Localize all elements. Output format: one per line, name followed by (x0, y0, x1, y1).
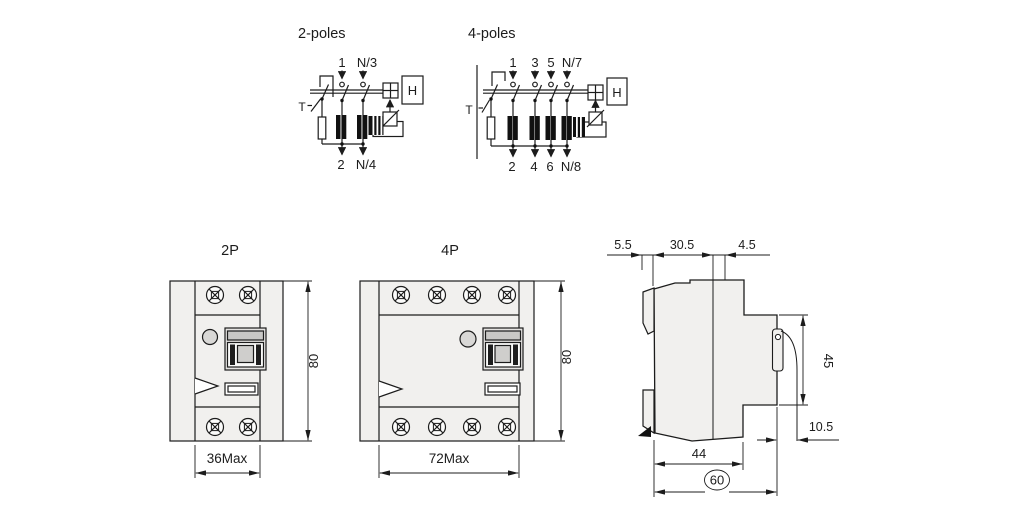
terminal-label-n3: N/3 (357, 55, 377, 70)
test-button-label: T (298, 100, 306, 114)
trip-linkage-bracket (492, 72, 505, 86)
schematic-2-poles: 2-poles 1 N/3 2 N/4 T H (280, 8, 460, 178)
relay-label: H (612, 85, 621, 100)
relay-label: H (408, 83, 417, 98)
schematic-2p-title: 2-poles (298, 26, 346, 42)
schematic-4p-title: 4-poles (468, 26, 516, 42)
terminal-label-1: 1 (509, 55, 516, 70)
technical-drawing-sheet: 2-poles 1 N/3 2 N/4 T H (0, 0, 1024, 519)
test-resistor (318, 117, 326, 139)
terminal-label-2: 2 (337, 157, 344, 172)
test-button (203, 330, 218, 345)
terminal-circle (361, 82, 366, 87)
test-switch-blade (311, 99, 321, 112)
label-window (225, 383, 258, 395)
front-view-2p: 2P 80 36Max (160, 232, 325, 482)
dim-45: 45 (821, 354, 836, 368)
toggle-switch (483, 328, 523, 370)
terminal-label-n4: N/4 (356, 157, 376, 172)
lever-pivot (775, 334, 780, 339)
terminal-label-2: 2 (508, 159, 515, 174)
front-view-4p: 4P 80 72Max (350, 232, 585, 482)
dim-4-5: 4.5 (738, 238, 755, 252)
ct-primary-windings (508, 116, 586, 140)
label-window (485, 383, 520, 395)
dim-height-80: 80 (559, 350, 574, 364)
dim-width-36max: 36Max (207, 451, 248, 466)
front-2p-title: 2P (221, 243, 239, 259)
terminal-label-n8: N/8 (561, 159, 581, 174)
terminal-label-n7: N/7 (562, 55, 582, 70)
front-4p-title: 4P (441, 243, 459, 259)
schematic-4-poles: 4-poles 1 3 5 N/7 2 4 6 N/8 T H (455, 8, 665, 178)
breaker-side-profile (654, 280, 777, 441)
terminal-label-1: 1 (338, 55, 345, 70)
test-resistor (487, 117, 495, 139)
dim-30-5: 30.5 (670, 238, 694, 252)
trip-linkage-bracket (320, 76, 333, 97)
terminal-circle (340, 82, 345, 87)
terminal-label-6: 6 (546, 159, 553, 174)
dim-height-80: 80 (306, 354, 321, 368)
test-button (460, 331, 476, 347)
junction-dots (489, 97, 568, 147)
test-button-label: T (465, 103, 473, 117)
side-view: 5.5 30.5 4.5 45 10.5 44 60 (595, 230, 850, 510)
terminal-label-5: 5 (547, 55, 554, 70)
dim-5-5: 5.5 (614, 238, 631, 252)
terminal-label-3: 3 (531, 55, 538, 70)
toggle-switch (225, 328, 266, 370)
terminal-label-4: 4 (530, 159, 537, 174)
test-switch-blade (482, 100, 490, 113)
dim-10-5: 10.5 (809, 420, 833, 434)
dim-44: 44 (692, 446, 706, 461)
dim-60: 60 (710, 473, 724, 488)
dim-width-72max: 72Max (429, 451, 470, 466)
din-clip-bottom (643, 390, 654, 433)
test-contact-blade (322, 85, 329, 100)
din-claw-top (643, 288, 654, 334)
toroid-core-stripes (373, 116, 383, 135)
